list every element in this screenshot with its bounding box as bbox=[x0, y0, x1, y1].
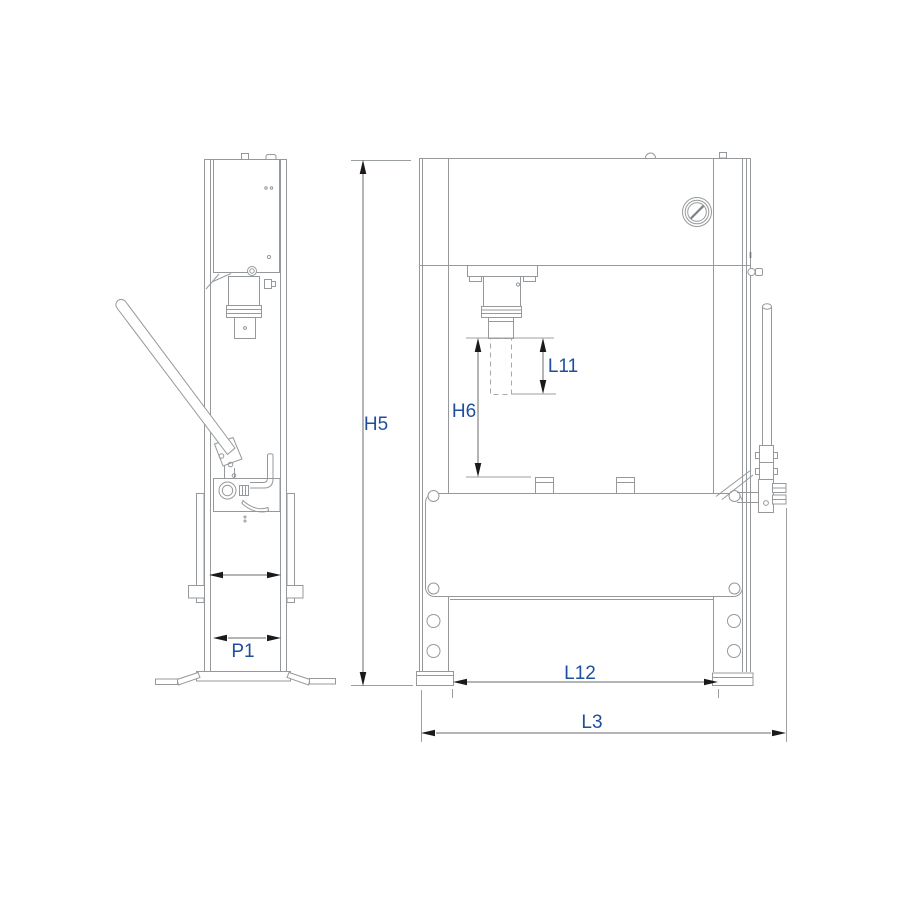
work-table bbox=[426, 491, 743, 600]
pressure-gauge bbox=[683, 198, 712, 227]
pump-handle-front bbox=[763, 304, 772, 310]
table-corner-bolt bbox=[428, 491, 439, 502]
dimension-label-p1: P1 bbox=[231, 641, 254, 662]
dimension-label-l3: L3 bbox=[581, 712, 602, 733]
dimension-inner-width bbox=[209, 572, 281, 579]
arrowhead-down bbox=[360, 672, 367, 686]
release-valve-knob bbox=[219, 482, 236, 499]
pump-block bbox=[759, 480, 774, 513]
foot-right bbox=[713, 673, 754, 686]
hydraulic-cylinder-side bbox=[227, 277, 262, 339]
dimension-l12: L12 bbox=[453, 663, 719, 698]
arrowhead-up bbox=[540, 338, 547, 352]
dimension-label-h5: H5 bbox=[364, 414, 388, 435]
valve-block-side bbox=[214, 479, 281, 523]
arrowhead-left bbox=[213, 635, 227, 642]
dimension-l11: L11 bbox=[512, 338, 578, 394]
arrowhead-left bbox=[453, 679, 467, 686]
table-corner-bolt bbox=[729, 583, 740, 594]
leg-hole bbox=[728, 615, 741, 628]
table-corner-bolt bbox=[428, 583, 439, 594]
leg-hole bbox=[728, 645, 741, 658]
arrowhead-left bbox=[209, 572, 223, 579]
leg-hole bbox=[427, 615, 440, 628]
leg-hole bbox=[427, 645, 440, 658]
lifting-hook bbox=[646, 153, 727, 159]
arrowhead-up bbox=[475, 338, 482, 352]
technical-drawing: H5 H6 L11 P1 L12 bbox=[0, 0, 900, 900]
dimension-h5: H5 bbox=[351, 160, 413, 686]
dimension-label-l11: L11 bbox=[548, 356, 578, 377]
base-foot-side bbox=[156, 672, 336, 686]
arrowhead-down bbox=[540, 380, 547, 394]
pump-handle bbox=[116, 299, 235, 454]
filler-plug bbox=[248, 267, 257, 276]
dimension-h6: H6 bbox=[452, 338, 554, 477]
dimension-label-l12: L12 bbox=[564, 663, 596, 684]
dimension-label-h6: H6 bbox=[452, 401, 476, 422]
arrowhead-left bbox=[421, 730, 435, 737]
arrowhead-right bbox=[267, 635, 281, 642]
dimension-p1: P1 bbox=[213, 635, 281, 662]
arrowhead-right bbox=[267, 572, 281, 579]
arrowhead-up bbox=[360, 160, 367, 174]
pump-body-side bbox=[206, 154, 280, 290]
hydraulic-cylinder-front bbox=[468, 266, 538, 339]
side-view bbox=[116, 154, 336, 686]
arrowhead-right bbox=[772, 730, 786, 737]
press-ram-extended bbox=[491, 339, 512, 395]
table-pins bbox=[536, 478, 635, 494]
foot-left bbox=[417, 672, 454, 686]
arrowhead-down bbox=[475, 463, 482, 477]
